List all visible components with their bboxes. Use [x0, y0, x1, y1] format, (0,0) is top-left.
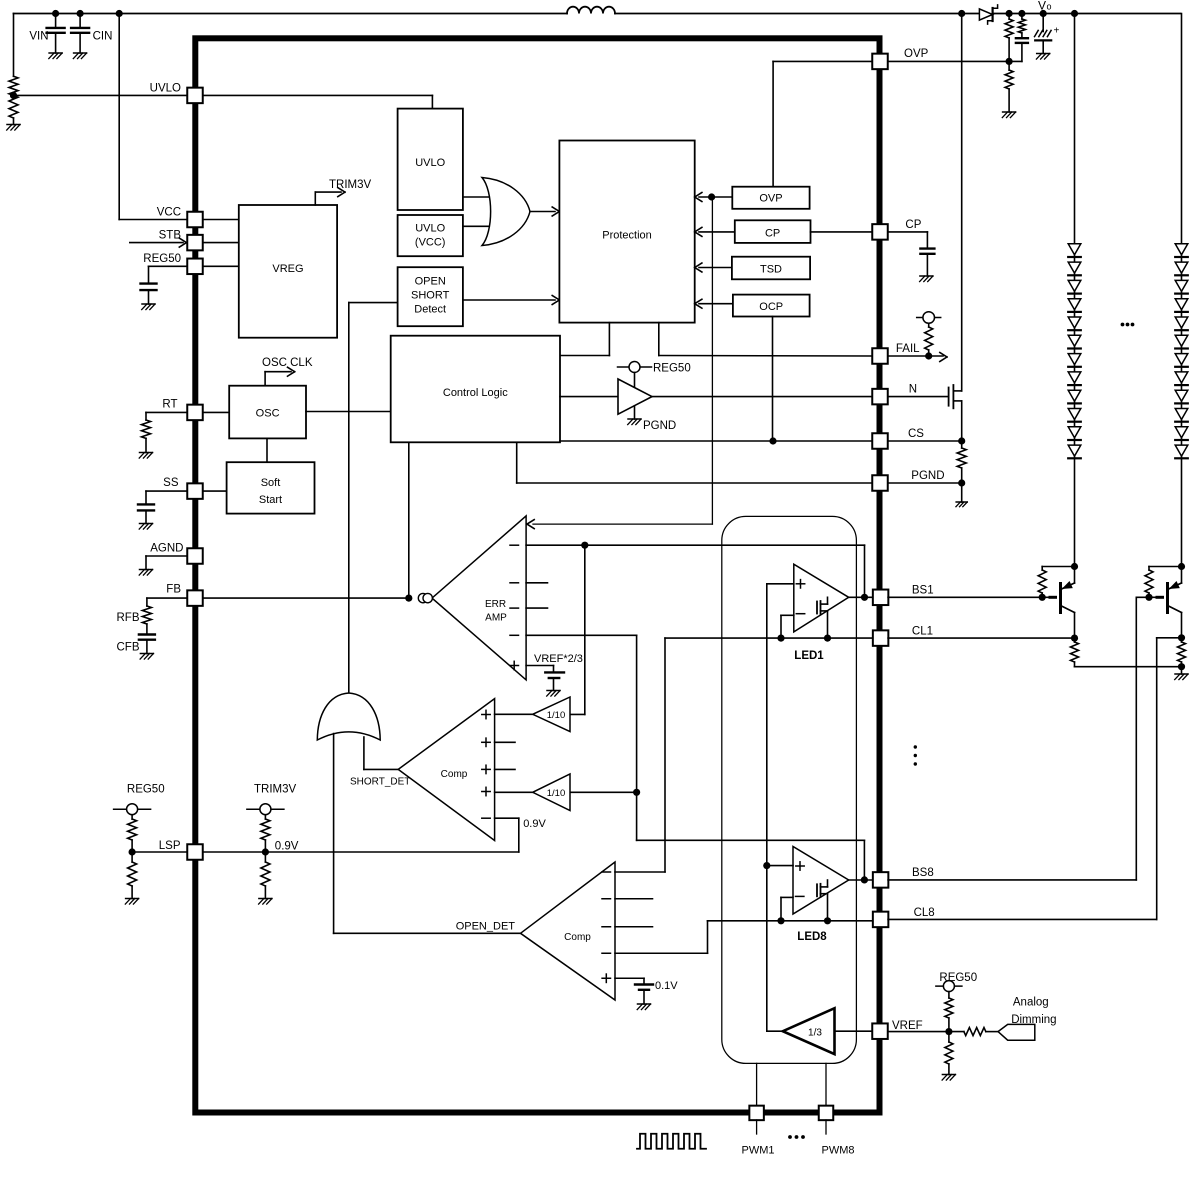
svg-text:Detect: Detect — [414, 304, 446, 316]
svg-text:VREF: VREF — [892, 1020, 923, 1032]
svg-text:LED8: LED8 — [797, 931, 827, 943]
svg-text:Dimming: Dimming — [1011, 1014, 1056, 1026]
svg-text:OPEN_DET: OPEN_DET — [456, 921, 516, 933]
svg-text:Comp: Comp — [441, 769, 468, 780]
svg-text:CP: CP — [765, 228, 780, 240]
svg-text:Analog: Analog — [1013, 997, 1049, 1009]
svg-text:OVP: OVP — [904, 48, 929, 60]
svg-text:UVLO: UVLO — [415, 223, 445, 235]
svg-text:o: o — [1047, 2, 1052, 12]
svg-text:VREF*2/3: VREF*2/3 — [534, 653, 583, 665]
svg-text:REG50: REG50 — [653, 363, 691, 375]
svg-text:CIN: CIN — [93, 31, 113, 43]
svg-text:0.9V: 0.9V — [523, 818, 546, 830]
svg-text:FB: FB — [166, 584, 181, 596]
svg-text:LED1: LED1 — [794, 650, 824, 662]
svg-text:UVLO: UVLO — [415, 157, 445, 169]
svg-text:PGND: PGND — [911, 470, 944, 482]
svg-text:1/10: 1/10 — [547, 788, 566, 799]
svg-text:TRIM3V: TRIM3V — [254, 784, 297, 796]
svg-text:SHORT: SHORT — [411, 290, 450, 302]
svg-text:Start: Start — [259, 494, 282, 506]
svg-text:PWM8: PWM8 — [822, 1145, 855, 1157]
svg-text:CL1: CL1 — [912, 626, 933, 638]
svg-text:TSD: TSD — [760, 264, 782, 276]
svg-text:STB: STB — [159, 230, 182, 242]
svg-text:SHORT_DET: SHORT_DET — [350, 777, 410, 788]
svg-text:REG50: REG50 — [127, 784, 165, 796]
svg-text:OPEN: OPEN — [415, 276, 446, 288]
svg-text:OSC CLK: OSC CLK — [262, 357, 313, 369]
svg-text:Comp: Comp — [564, 932, 591, 943]
svg-text:Soft: Soft — [261, 477, 281, 489]
svg-text:CFB: CFB — [117, 642, 140, 654]
svg-text:FAIL: FAIL — [896, 343, 920, 355]
svg-text:LSP: LSP — [159, 840, 181, 852]
svg-text:TRIM3V: TRIM3V — [329, 179, 372, 191]
svg-text:1/10: 1/10 — [547, 710, 566, 721]
svg-text:REG50: REG50 — [143, 253, 181, 265]
svg-text:0.1V: 0.1V — [655, 980, 678, 992]
svg-text:CL8: CL8 — [914, 907, 935, 919]
svg-text:CP: CP — [905, 219, 921, 231]
svg-text:(VCC): (VCC) — [415, 237, 446, 249]
svg-text:BS8: BS8 — [912, 867, 934, 879]
svg-text:Protection: Protection — [602, 230, 652, 242]
svg-text:+: + — [1054, 26, 1060, 37]
svg-text:RT: RT — [162, 399, 177, 411]
svg-text:SS: SS — [163, 477, 179, 489]
svg-text:RFB: RFB — [117, 612, 140, 624]
svg-text:CS: CS — [908, 428, 924, 440]
svg-text:VIN: VIN — [29, 31, 48, 43]
svg-text:OCP: OCP — [759, 301, 783, 313]
svg-text:UVLO: UVLO — [150, 83, 181, 95]
svg-text:AMP: AMP — [485, 613, 507, 624]
svg-text:OVP: OVP — [759, 193, 782, 205]
svg-text:N: N — [909, 384, 917, 396]
svg-text:PGND: PGND — [643, 420, 676, 432]
svg-text:PWM1: PWM1 — [742, 1145, 775, 1157]
svg-text:0.9V: 0.9V — [275, 841, 299, 853]
svg-text:1/3: 1/3 — [808, 1028, 822, 1039]
svg-text:BS1: BS1 — [912, 585, 934, 597]
svg-text:ERR: ERR — [485, 599, 506, 610]
svg-text:Control Logic: Control Logic — [443, 387, 508, 399]
svg-text:VREG: VREG — [272, 263, 303, 275]
svg-text:OSC: OSC — [256, 408, 280, 420]
svg-text:AGND: AGND — [150, 543, 183, 555]
svg-text:VCC: VCC — [157, 207, 181, 219]
